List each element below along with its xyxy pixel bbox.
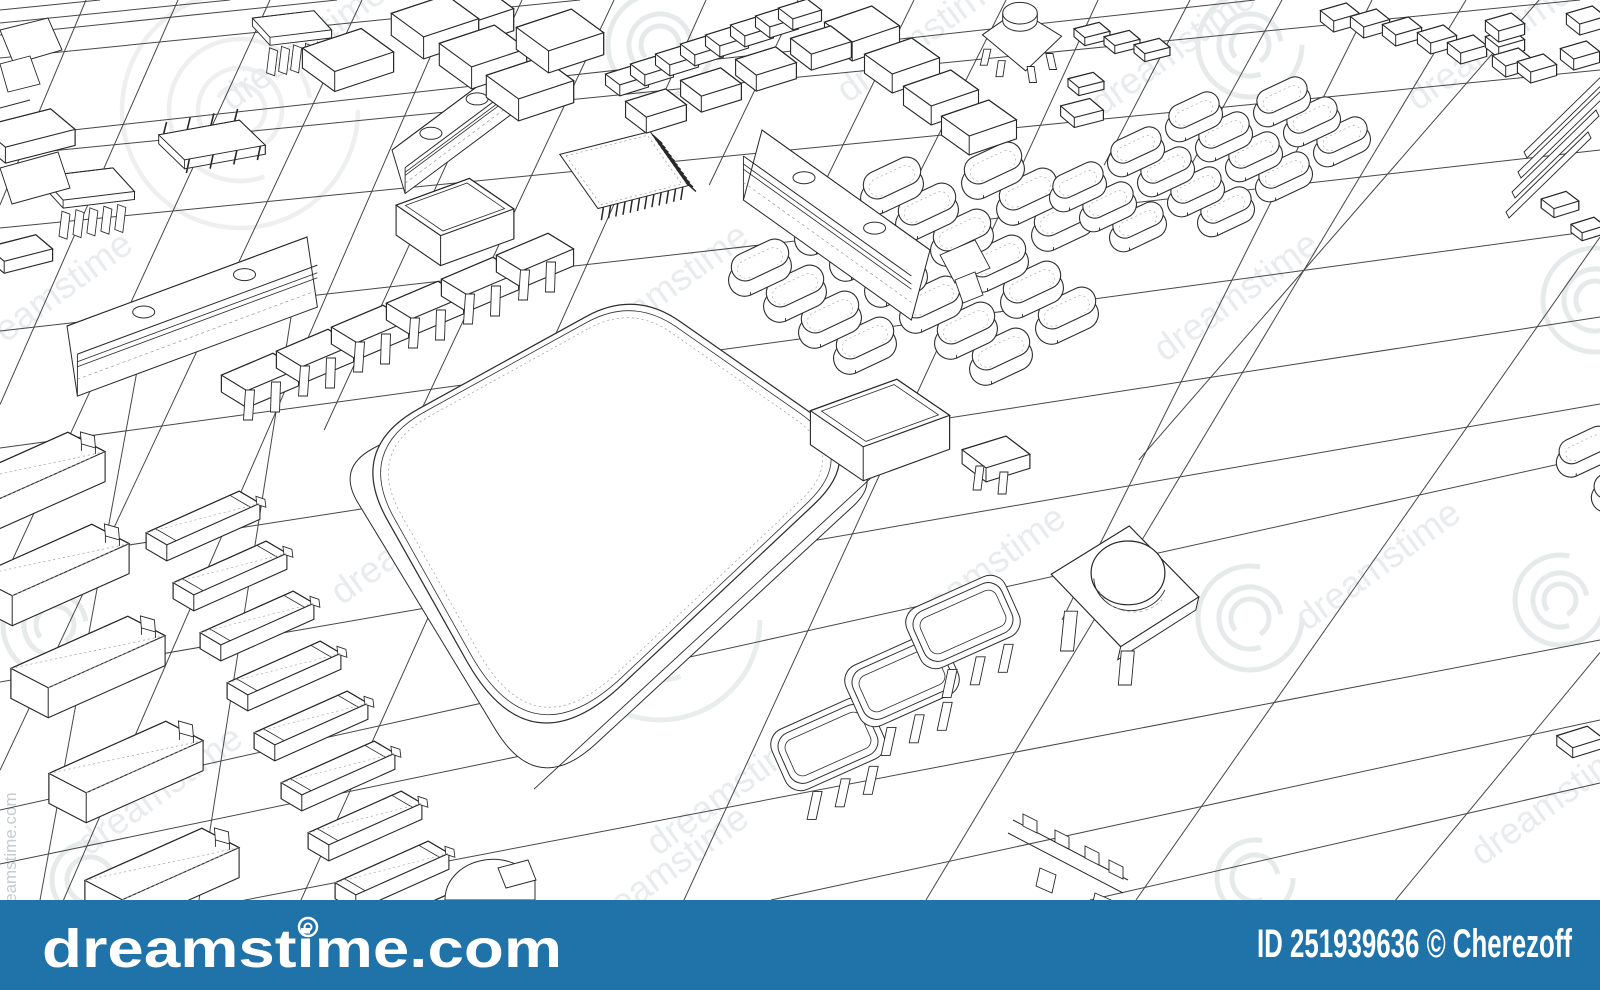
svg-text:dreamstime.com: dreamstime.com: [42, 919, 562, 979]
svg-text:dreamstime.com: dreamstime.com: [1, 792, 20, 918]
svg-text:ID 251939636 © Cherezoff: ID 251939636 © Cherezoff: [1257, 922, 1572, 966]
